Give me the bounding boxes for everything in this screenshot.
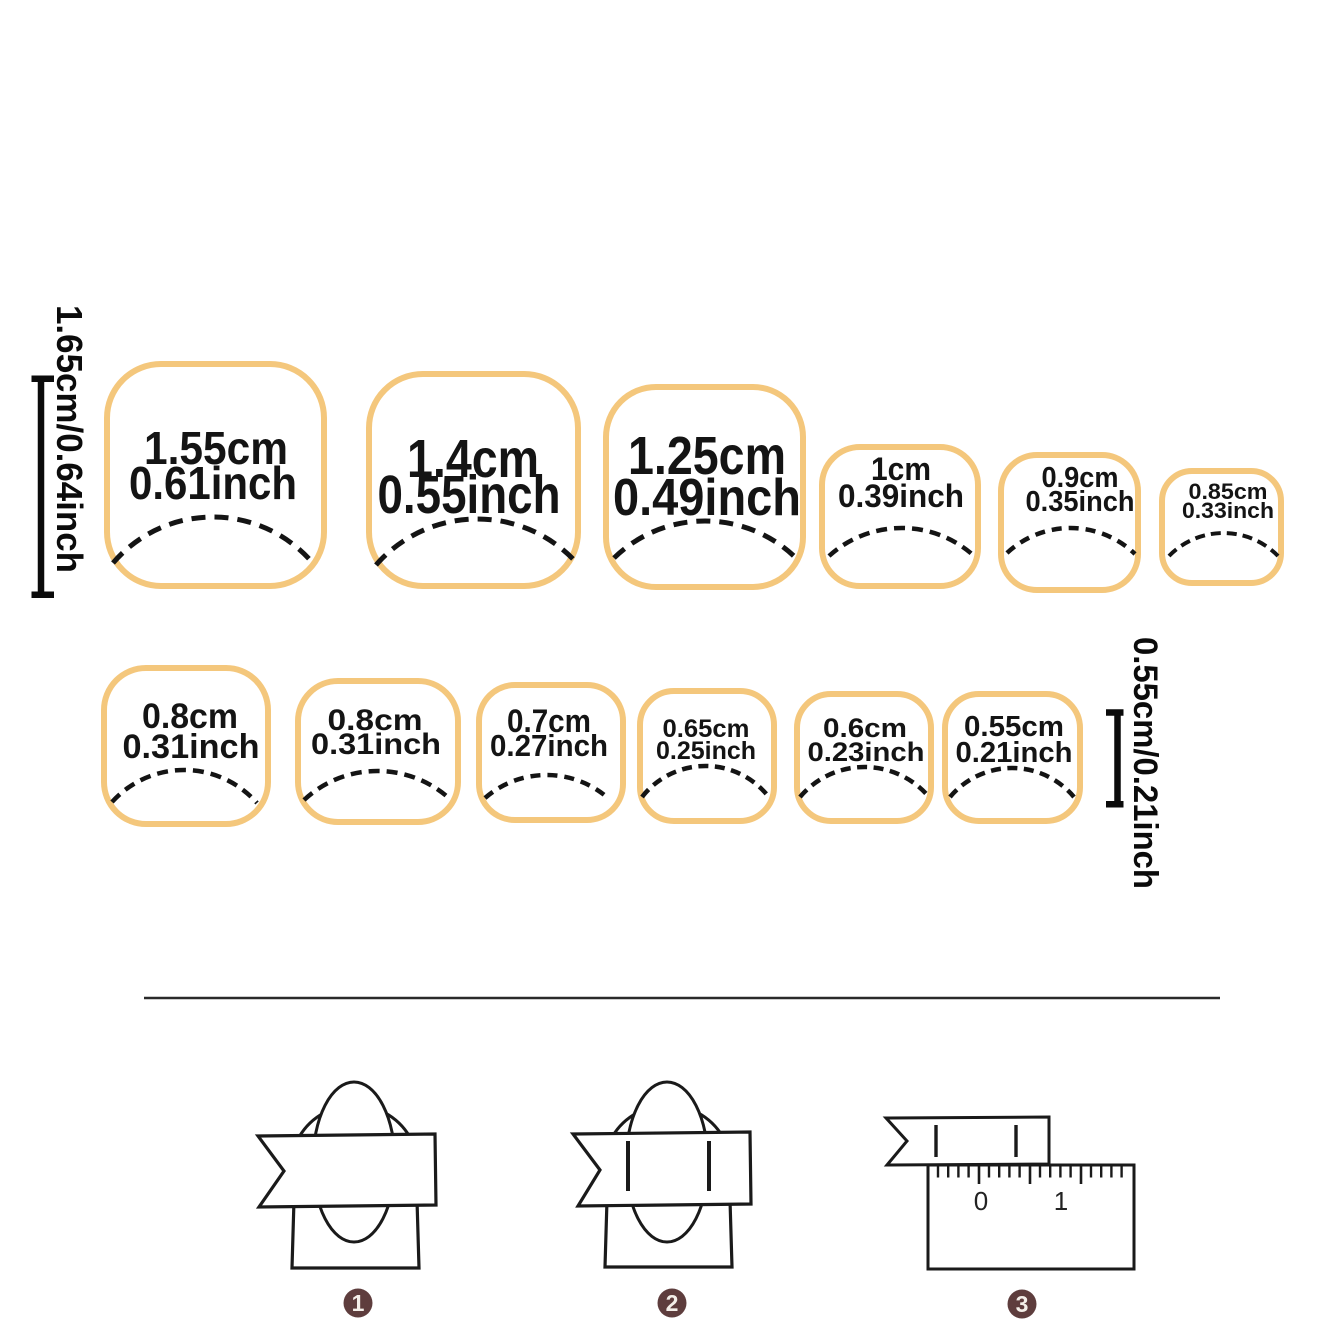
svg-text:0.35inch: 0.35inch xyxy=(1026,486,1135,518)
svg-text:0.31inch: 0.31inch xyxy=(311,728,441,761)
svg-text:0.25inch: 0.25inch xyxy=(656,737,756,765)
svg-text:1: 1 xyxy=(1054,1186,1068,1216)
svg-text:0.55inch: 0.55inch xyxy=(378,465,561,525)
svg-text:0.31inch: 0.31inch xyxy=(123,728,260,766)
svg-text:0.33inch: 0.33inch xyxy=(1182,498,1274,523)
svg-text:1.65cm/0.64inch: 1.65cm/0.64inch xyxy=(49,305,90,573)
svg-text:0.27inch: 0.27inch xyxy=(490,728,608,763)
svg-text:1: 1 xyxy=(352,1290,365,1316)
svg-text:3: 3 xyxy=(1016,1291,1029,1317)
svg-text:0.39inch: 0.39inch xyxy=(838,478,964,514)
svg-text:0: 0 xyxy=(974,1186,988,1216)
svg-text:0.21inch: 0.21inch xyxy=(956,737,1073,769)
svg-text:0.61inch: 0.61inch xyxy=(129,457,297,509)
svg-text:0.49inch: 0.49inch xyxy=(613,469,801,527)
svg-text:0.55cm/0.21inch: 0.55cm/0.21inch xyxy=(1126,637,1164,889)
svg-text:2: 2 xyxy=(666,1290,679,1316)
svg-text:0.23inch: 0.23inch xyxy=(808,737,925,767)
